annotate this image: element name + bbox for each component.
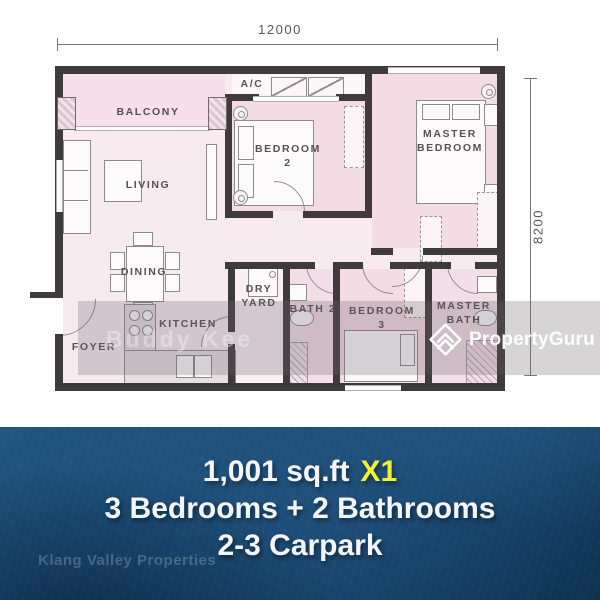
wall (475, 262, 498, 269)
balcony-pillar (208, 97, 227, 130)
sofa-cushion-line (64, 200, 88, 201)
dimension-tick (524, 375, 537, 376)
ceiling-fan-icon (481, 84, 496, 99)
window (56, 160, 63, 212)
tv-console (206, 144, 217, 220)
entrance-opening (55, 298, 63, 334)
wardrobe (477, 192, 499, 252)
label-master-bedroom: MASTER BEDROOM (408, 128, 492, 155)
dimension-tick (57, 38, 58, 51)
wall (55, 383, 505, 391)
window (388, 67, 480, 74)
dimension-tick (497, 38, 498, 51)
label-dining: DINING (113, 266, 175, 280)
wall (303, 211, 368, 218)
pillow (452, 104, 480, 120)
dimension-height-label: 8200 (531, 197, 546, 257)
balcony-sliding-door (74, 126, 210, 131)
wall (371, 248, 393, 255)
dimension-width-label: 12000 (230, 22, 330, 37)
sink (288, 284, 307, 301)
area-line: 1,001 sq.ftX1 (203, 453, 397, 490)
label-living: LIVING (116, 179, 180, 193)
propertyguru-watermark: PropertyGuru (428, 322, 595, 357)
dimension-line (57, 44, 498, 45)
label-balcony: BALCONY (106, 106, 190, 120)
wall (365, 72, 372, 218)
ac-compressor (271, 77, 307, 97)
washing-machine-knob (269, 271, 276, 278)
floor-plan-listing-image: BALCONY LIVING A/C BEDROOM 2 MASTER BEDR… (0, 0, 600, 600)
sofa (63, 140, 91, 234)
ceiling-fan-icon (233, 190, 248, 205)
listing-info-text: 1,001 sq.ftX1 3 Bedrooms + 2 Bathrooms 2… (0, 427, 600, 600)
window (253, 96, 339, 102)
wardrobe (420, 216, 442, 262)
wardrobe (344, 106, 364, 168)
agency-watermark: Klang Valley Properties (38, 552, 216, 569)
room-balcony (63, 74, 225, 128)
agent-watermark: Buddy Kee (106, 326, 253, 353)
ceiling-fan-icon (233, 106, 248, 121)
sofa-cushion-line (64, 170, 88, 171)
bedrooms-bathrooms-line: 3 Bedrooms + 2 Bathrooms (105, 490, 496, 527)
label-bedroom2: BEDROOM 2 (250, 143, 326, 170)
carpark-line: 2-3 Carpark (217, 527, 382, 564)
pillow (422, 104, 450, 120)
area-value: 1,001 sq.ft (203, 455, 350, 488)
propertyguru-diamond-icon (428, 322, 463, 357)
wall (423, 248, 498, 255)
label-ac: A/C (234, 78, 270, 92)
balcony-pillar (57, 97, 76, 130)
listing-info-banner: 1,001 sq.ftX1 3 Bedrooms + 2 Bathrooms 2… (0, 427, 600, 600)
wall (225, 211, 273, 218)
entrance-wall-stub (30, 292, 56, 298)
sink (477, 276, 497, 293)
dining-chair (133, 232, 153, 246)
window (345, 385, 401, 391)
dimension-tick (524, 78, 537, 79)
propertyguru-wordmark: PropertyGuru (469, 329, 595, 351)
unit-quantity: X1 (361, 455, 398, 488)
